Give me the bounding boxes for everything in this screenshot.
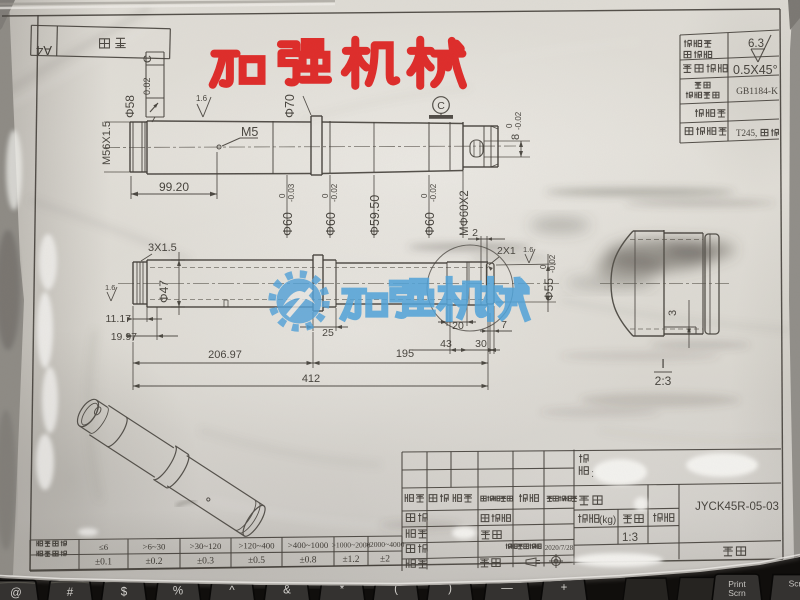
svg-text:@: @ [10, 587, 22, 599]
svg-text:%: % [173, 586, 183, 598]
svg-text:—: — [501, 582, 513, 594]
svg-text:+: + [561, 582, 568, 594]
svg-text:): ) [448, 583, 452, 595]
svg-text:^: ^ [229, 585, 235, 597]
svg-text:$: $ [121, 586, 128, 598]
svg-text:&: & [283, 585, 291, 597]
svg-text:Scrn: Scrn [728, 588, 746, 598]
svg-text:Scr: Scr [789, 579, 800, 589]
svg-text:*: * [340, 584, 345, 596]
svg-text:#: # [67, 587, 74, 599]
